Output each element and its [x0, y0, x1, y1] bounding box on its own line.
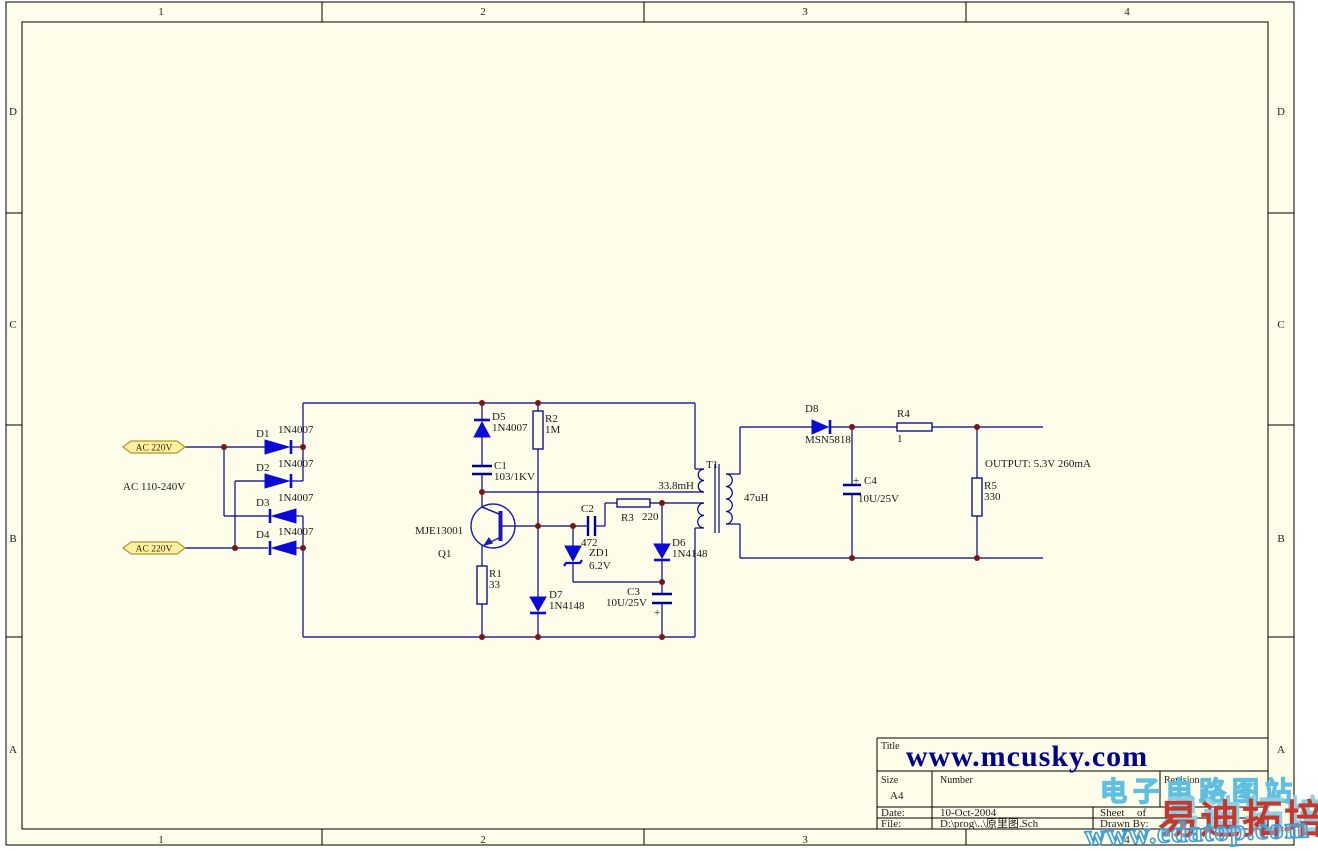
primary-inductance: 33.8mH: [658, 480, 694, 492]
zone-row-b-left: B: [9, 533, 16, 545]
value: 1: [897, 433, 903, 445]
sheet-background: [6, 2, 1294, 845]
resistor-body: [972, 478, 982, 516]
zone-row-a-left: A: [9, 744, 17, 756]
ac-range-note: AC 110-240V: [123, 481, 185, 493]
refdes: ZD1: [589, 547, 609, 559]
secondary-inductance: 47uH: [744, 492, 769, 504]
size-label: Size: [881, 775, 899, 786]
value: 220: [642, 511, 659, 523]
value: MSN5818: [805, 434, 851, 446]
refdes: D8: [805, 403, 819, 415]
value: MJE13001: [415, 525, 463, 537]
value: 1N4007: [278, 458, 314, 470]
polarity-mark: +: [853, 475, 859, 487]
value: 1N4007: [278, 424, 314, 436]
number-label: Number: [940, 775, 973, 786]
zone-col-1-top: 1: [158, 6, 164, 18]
refdes: D2: [256, 462, 269, 474]
value: 10U/25V: [858, 493, 899, 505]
resistor-body: [617, 499, 650, 507]
refdes: C2: [581, 503, 594, 515]
zone-row-d-right: D: [1277, 106, 1285, 118]
title-text: www.mcusky.com: [906, 740, 1148, 773]
zone-row-d-left: D: [9, 106, 17, 118]
zone-row-b-right: B: [1277, 533, 1284, 545]
refdes: R4: [897, 408, 910, 420]
resistor-body: [533, 411, 543, 449]
refdes: D1: [256, 428, 269, 440]
zone-col-3-top: 3: [802, 6, 808, 18]
refdes: D3: [256, 497, 270, 509]
polarity-mark: +: [654, 607, 660, 619]
value: 1N4148: [672, 548, 708, 560]
sheet-frame: 1 2 3 4 1 2 3 4 D C B A D C B A: [6, 2, 1294, 846]
value: 103/1KV: [494, 471, 535, 483]
watermark-url: www.edatop.com: [1084, 812, 1310, 851]
port-ac220v-bottom[interactable]: AC 220V: [123, 542, 185, 555]
file-label: File:: [881, 818, 901, 830]
resistor-body: [897, 423, 932, 431]
zone-row-a-right: A: [1277, 744, 1285, 756]
port-ac220v-top[interactable]: AC 220V: [123, 441, 185, 454]
zone-row-c-left: C: [9, 319, 16, 331]
refdes: R3: [621, 512, 634, 524]
zone-row-c-right: C: [1277, 319, 1284, 331]
value: 10U/25V: [606, 597, 647, 609]
refdes: C4: [864, 475, 877, 487]
refdes: T1: [706, 459, 718, 471]
refdes: D4: [256, 529, 270, 541]
port-label: AC 220V: [136, 545, 173, 555]
size-value: A4: [890, 790, 904, 802]
zone-col-2-top: 2: [480, 6, 486, 18]
value: 1N4007: [492, 422, 528, 434]
output-note: OUTPUT: 5.3V 260mA: [985, 458, 1091, 470]
port-label: AC 220V: [136, 444, 173, 454]
resistor-body: [477, 566, 487, 604]
value: 6.2V: [589, 560, 611, 572]
zone-col-2-bottom: 2: [480, 834, 486, 846]
value: 1N4007: [278, 526, 314, 538]
value: 1N4148: [549, 600, 585, 612]
value: 1M: [545, 424, 561, 436]
schematic-page: 1 2 3 4 1 2 3 4 D C B A D C B A: [0, 0, 1318, 851]
value: 330: [984, 491, 1001, 503]
value: 1N4007: [278, 492, 314, 504]
zone-col-3-bottom: 3: [802, 834, 808, 846]
zone-col-4-top: 4: [1124, 6, 1130, 18]
title-label: Title: [881, 741, 900, 752]
file-path: D:\prog\..\原里图.Sch: [940, 817, 1039, 830]
zone-col-1-bottom: 1: [158, 834, 164, 846]
value: 33: [489, 579, 501, 591]
refdes: Q1: [438, 548, 451, 560]
